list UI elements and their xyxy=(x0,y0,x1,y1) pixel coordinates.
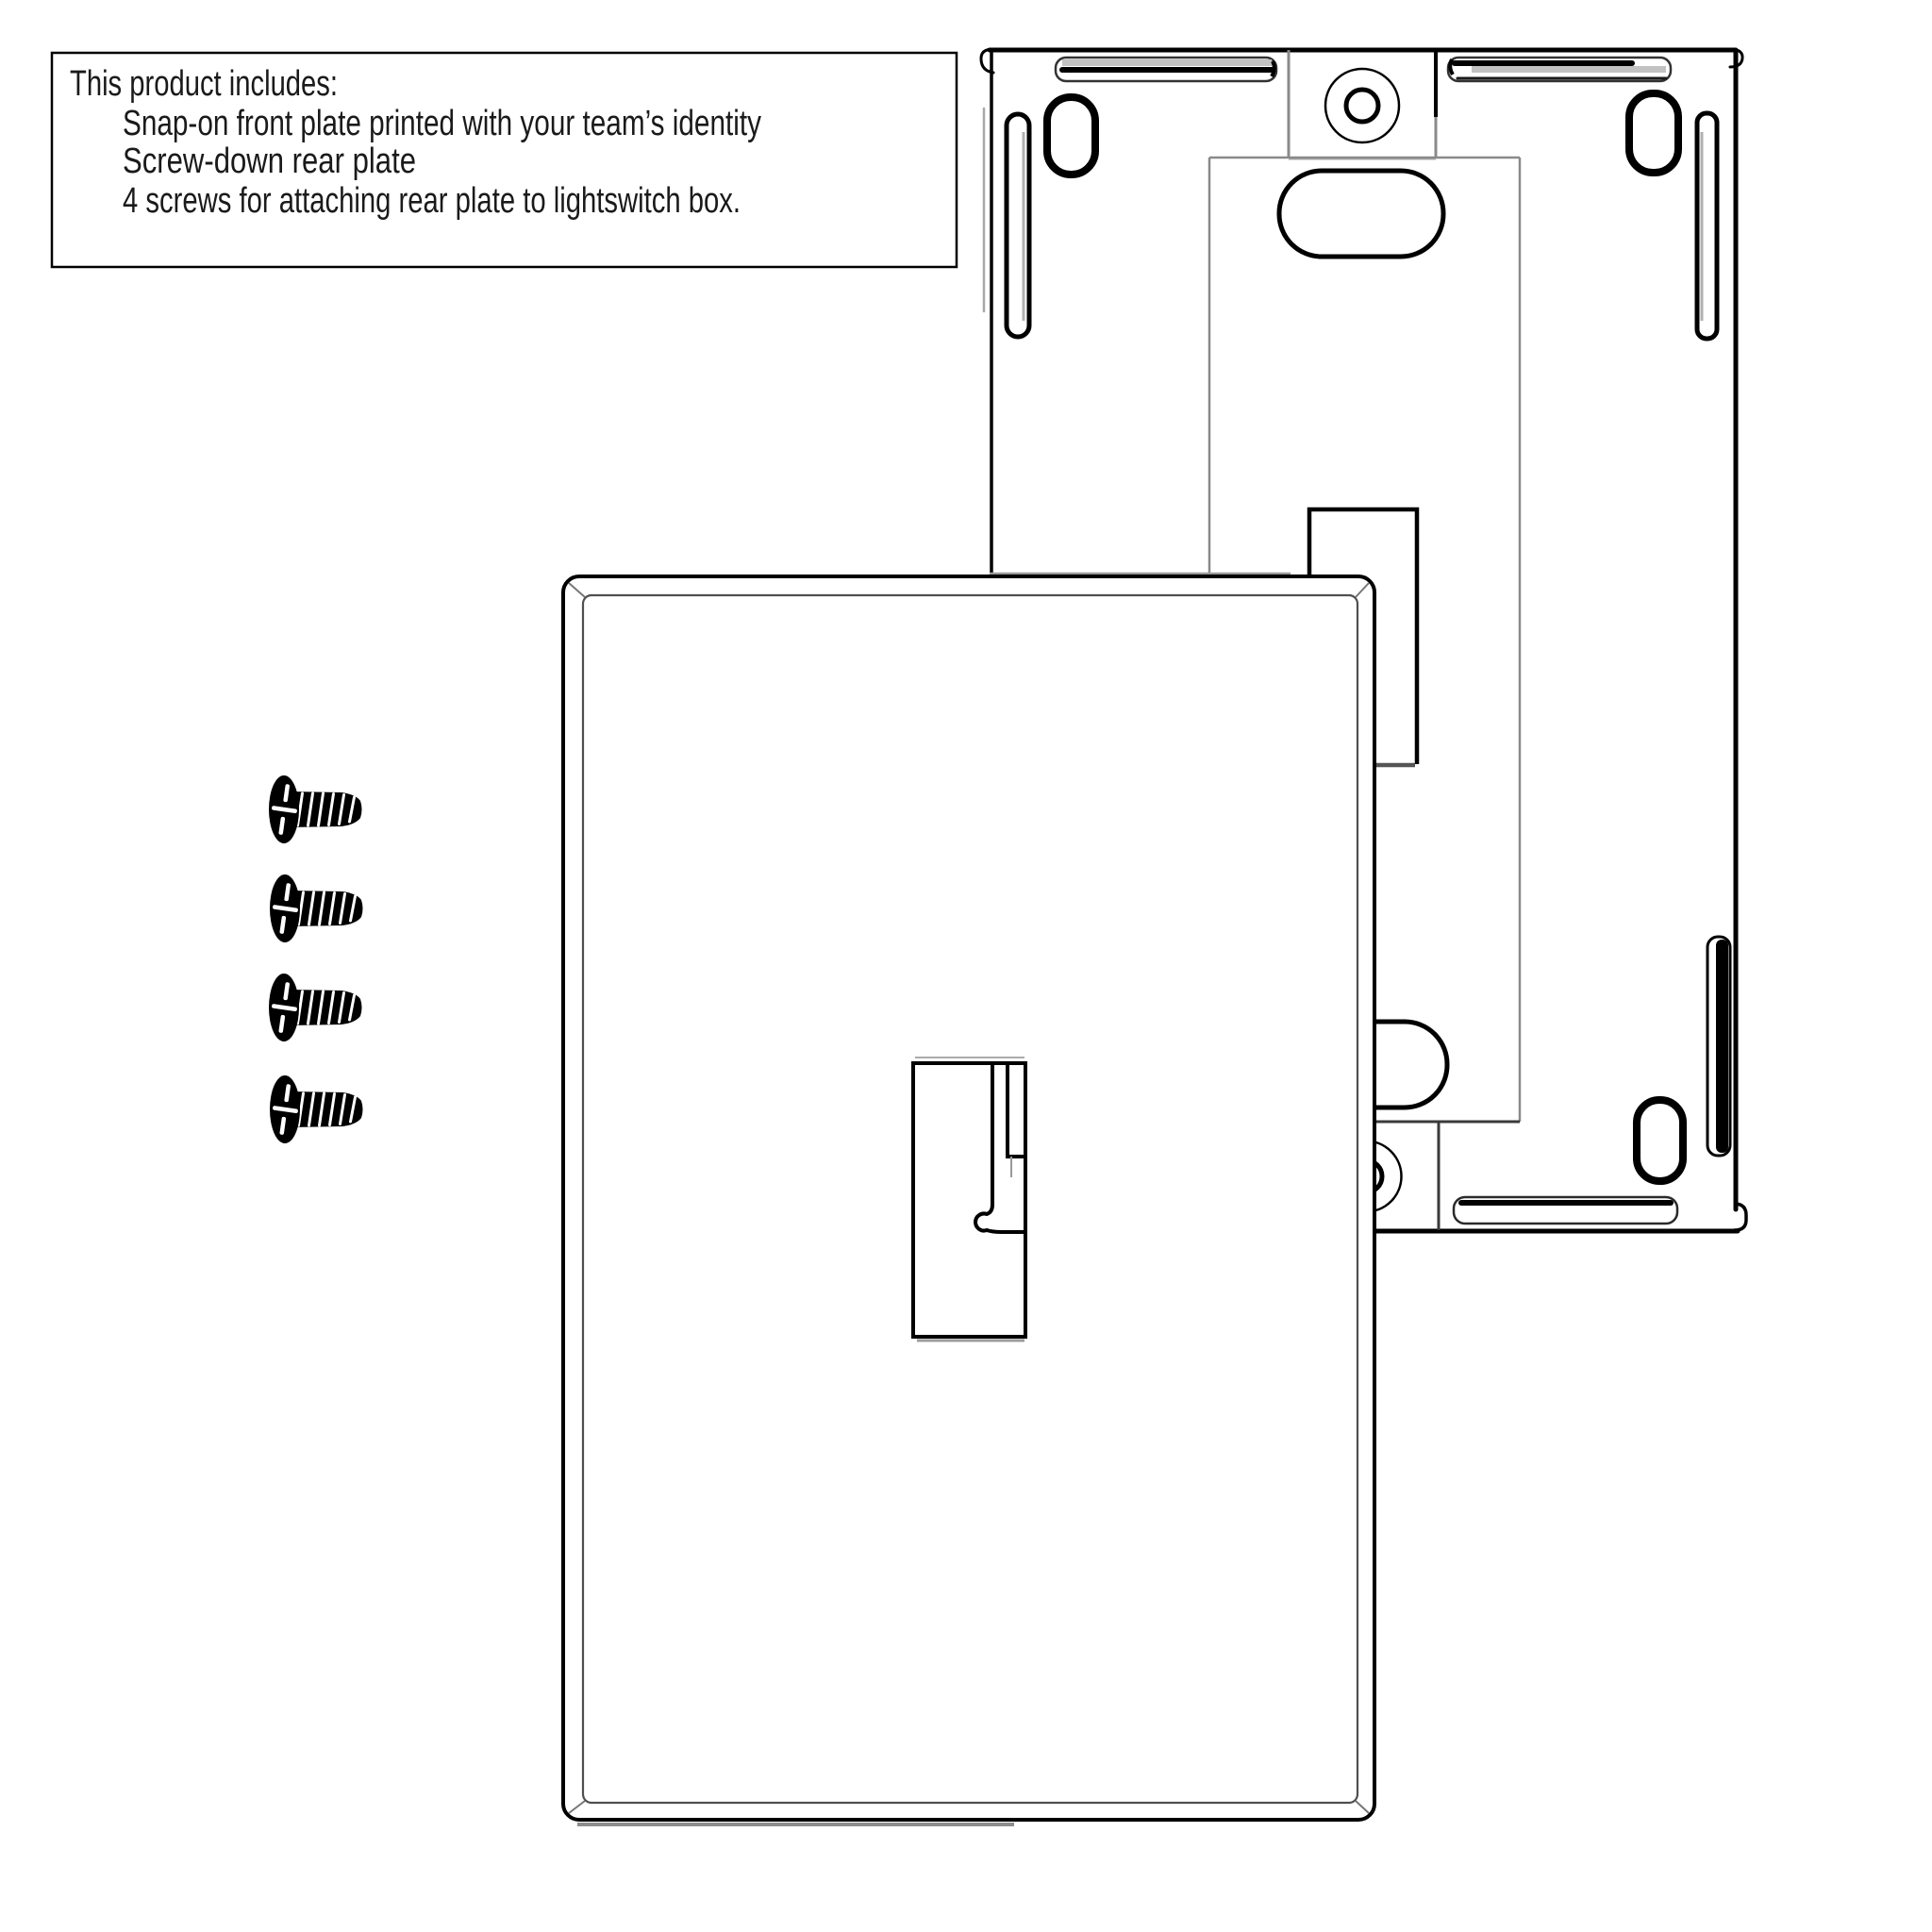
svg-text:Screw-down rear plate: Screw-down rear plate xyxy=(123,142,416,181)
svg-text:4 screws for attaching rear pl: 4 screws for attaching rear plate to lig… xyxy=(123,181,741,221)
svg-text:Snap-on front plate printed wi: Snap-on front plate printed with your te… xyxy=(123,104,761,143)
svg-text:This product includes:: This product includes: xyxy=(70,64,338,104)
